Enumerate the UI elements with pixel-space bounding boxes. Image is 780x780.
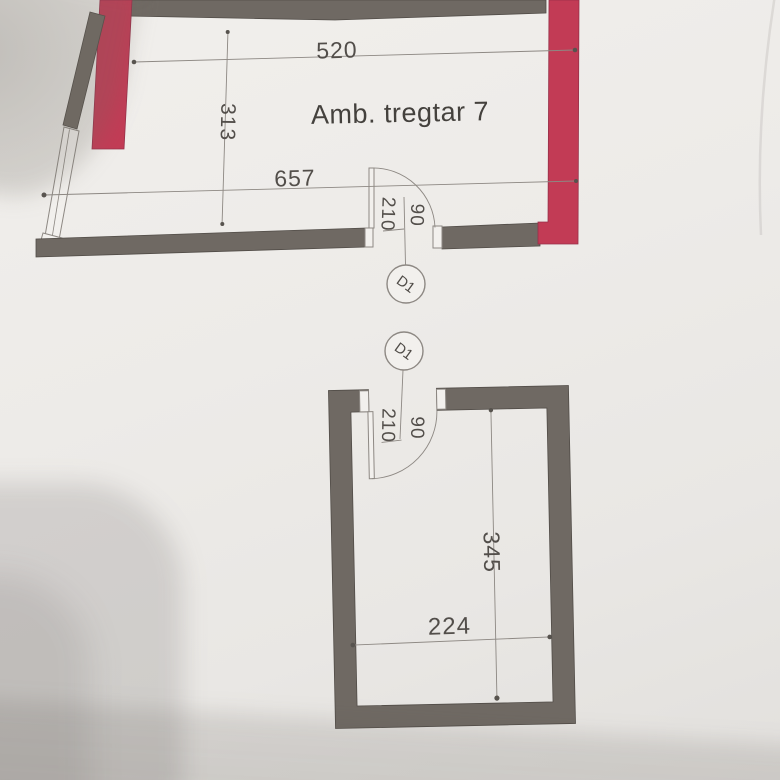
- dim-label-lower-door-90: 90: [406, 416, 427, 439]
- door-tag-leader-lower: [400, 370, 403, 439]
- dim-label-313: 313: [216, 103, 240, 141]
- upper-room: 520 313 657 Amb. tregtar 7 210 90: [36, 0, 579, 257]
- door-jamb-lower-right: [436, 389, 445, 409]
- dim-label-upper-door-210: 210: [376, 196, 398, 231]
- door-jamb-upper-left: [365, 228, 373, 247]
- wall-bottom-left-segment: [36, 228, 366, 257]
- door-tag-leader-upper: [404, 197, 406, 265]
- lower-room-walls: [328, 386, 575, 729]
- wall-bottom-right-segment: [442, 223, 540, 249]
- door-jamb-upper-right: [433, 226, 442, 248]
- door-tags: D1 D1: [385, 197, 425, 439]
- floor-plan-drawing: 520 313 657 Amb. tregtar 7 210 90 D1 D1: [0, 0, 780, 780]
- dim-dot: [132, 60, 137, 65]
- wall-top: [127, 0, 546, 20]
- dim-dot: [494, 695, 499, 700]
- door-leaf-upper: [369, 168, 374, 228]
- window-left: [45, 127, 79, 240]
- page-curl-line: [760, 0, 775, 235]
- lower-room: 345 224 210 90: [328, 386, 575, 729]
- dim-label-657: 657: [274, 164, 316, 191]
- dim-dot: [42, 193, 47, 198]
- dim-label-lower-door-210: 210: [377, 408, 398, 443]
- door-leaf-lower: [368, 412, 374, 479]
- dim-dot: [573, 48, 578, 53]
- dim-dot: [226, 30, 230, 34]
- dim-label-520: 520: [316, 36, 358, 63]
- room-title: Amb. tregtar 7: [311, 96, 490, 130]
- dim-dot: [574, 179, 578, 183]
- dim-dot: [220, 222, 224, 226]
- dim-label-224: 224: [428, 612, 472, 640]
- door-jamb-lower-left: [359, 391, 368, 412]
- dim-label-345: 345: [478, 531, 505, 573]
- floor-plan-photo: 520 313 657 Amb. tregtar 7 210 90 D1 D1: [0, 0, 780, 780]
- wall-red-right: [538, 0, 579, 244]
- dim-label-upper-door-90: 90: [406, 203, 428, 227]
